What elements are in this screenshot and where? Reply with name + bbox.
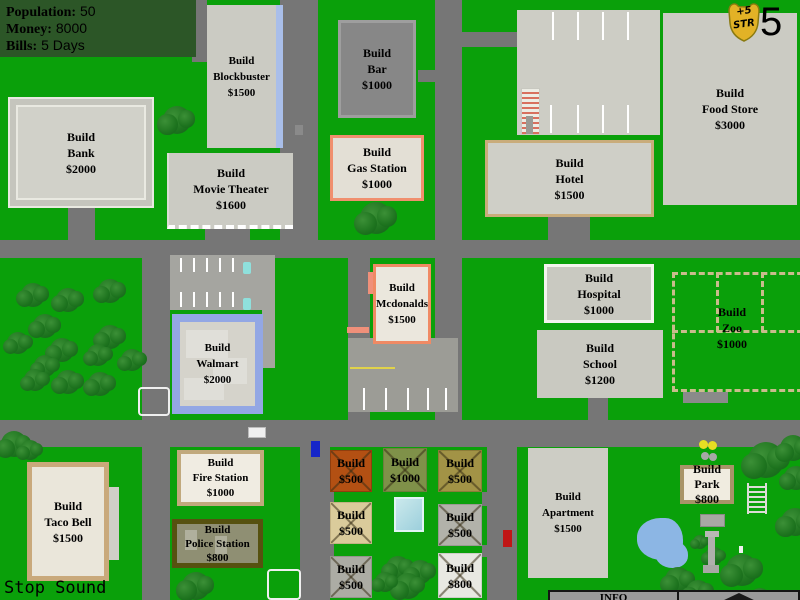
lot-price: $3000 xyxy=(715,117,745,133)
build-small-lot-2-button[interactable]: Build $1000 xyxy=(383,448,427,492)
build-taco-bell-button[interactable]: Build Taco Bell $1500 xyxy=(27,462,109,581)
info-panel[interactable]: INFO xyxy=(548,590,800,600)
build-movie-theater-button[interactable]: Build Movie Theater $1600 xyxy=(167,153,293,229)
parking-stripe xyxy=(180,258,182,272)
tree-icon xyxy=(360,202,392,234)
blockbuster-blue-edge xyxy=(276,5,283,148)
build-walmart-button[interactable]: Build Walmart $2000 xyxy=(172,314,263,414)
tree-icon xyxy=(781,508,800,536)
tree-icon xyxy=(56,370,80,394)
parking-stripe xyxy=(602,105,604,133)
lot-label: Build xyxy=(555,489,581,505)
lot-label: Build xyxy=(716,85,744,101)
parking-stripe xyxy=(363,388,365,410)
parking-stripe xyxy=(627,105,629,133)
lot-price: $1200 xyxy=(585,372,615,388)
road-teeth-3 xyxy=(482,492,498,506)
lot-title: Hotel xyxy=(556,171,584,187)
lot-price: $2000 xyxy=(66,161,96,177)
build-small-lot-7-button[interactable]: Build $800 xyxy=(438,553,482,598)
parking-stripe xyxy=(232,292,234,307)
lot-title: Hospital xyxy=(577,286,620,302)
lot-label: Build xyxy=(54,498,82,514)
parking-stripe xyxy=(206,258,208,272)
lot-price: $500 xyxy=(339,577,363,593)
lot-label: Build xyxy=(205,340,231,356)
road-vertical-bottom-right xyxy=(487,420,517,600)
lot-title: Taco Bell xyxy=(44,514,91,530)
lot-price: $1500 xyxy=(53,530,83,546)
stats-panel: Population:50 Money:8000 Bills:5 Days xyxy=(0,0,196,57)
lot-label: Build xyxy=(205,523,231,537)
parking-stripe xyxy=(445,388,447,410)
yellow-curb-line xyxy=(350,367,395,369)
lot-label: Build xyxy=(363,144,391,160)
build-park-button[interactable]: Build Park $800 xyxy=(680,465,734,504)
taco-bell-drive-strip xyxy=(109,487,119,560)
day-counter: 5 xyxy=(760,0,782,45)
tree-icon xyxy=(780,435,800,461)
lot-title: Apartment xyxy=(542,505,594,521)
bills-label: Bills: xyxy=(6,39,37,54)
build-hotel-button[interactable]: Build Hotel $1500 xyxy=(485,140,654,217)
flower-icon xyxy=(701,452,709,460)
parking-stripe xyxy=(550,105,552,133)
lot-label: Build xyxy=(446,455,474,471)
road-stub-parking xyxy=(462,32,517,47)
lot-label: Build xyxy=(337,561,365,577)
build-bar-button[interactable]: Build Bar $1000 xyxy=(338,20,416,118)
parking-stripe xyxy=(193,292,195,307)
lot-label: Build xyxy=(363,45,391,61)
build-blockbuster-button[interactable]: Build Blockbuster $1500 xyxy=(207,5,276,148)
lot-title: Bar xyxy=(367,61,386,77)
flower-icon xyxy=(709,453,717,461)
lot-label: Build xyxy=(586,340,614,356)
road-stub-hotel xyxy=(548,215,590,241)
park-bench xyxy=(700,514,725,527)
blue-car xyxy=(311,441,320,457)
lot-title: Movie Theater xyxy=(193,181,268,197)
lot-label: Build xyxy=(67,129,95,145)
empty-lot-marker xyxy=(138,387,170,416)
lot-label: Build xyxy=(389,280,415,296)
lot-price: $800 xyxy=(207,551,229,565)
lot-price: $1000 xyxy=(584,302,614,318)
build-small-lot-1-button[interactable]: Build $500 xyxy=(330,450,372,492)
lot-label: Build xyxy=(229,53,255,69)
parking-stripe xyxy=(407,388,409,410)
lot-price: $2000 xyxy=(204,372,232,388)
build-apartment-button[interactable]: Build Apartment $1500 xyxy=(528,448,608,578)
road-vertical-left xyxy=(142,255,170,600)
parking-stripe xyxy=(577,12,579,40)
parking-stripe xyxy=(193,258,195,272)
lot-title: Bank xyxy=(67,145,94,161)
lot-price: $1000 xyxy=(362,77,392,93)
tree-icon xyxy=(87,344,109,366)
build-bank-button[interactable]: Build Bank $2000 xyxy=(8,97,154,208)
cart-return-icon xyxy=(243,298,251,310)
lot-price: $500 xyxy=(448,525,472,541)
lot-label: Build xyxy=(585,270,613,286)
tree-icon xyxy=(21,283,45,307)
info-panel-title: INFO xyxy=(550,592,679,600)
population-value: 50 xyxy=(76,3,96,19)
build-small-lot-6-button[interactable]: Build $500 xyxy=(330,556,372,598)
parking-stripe xyxy=(627,12,629,40)
bills-value: 5 Days xyxy=(37,37,85,53)
strength-badge-icon: +5 STR xyxy=(726,0,762,42)
lot-label: Build xyxy=(391,454,419,470)
tree-icon xyxy=(784,466,800,490)
pond-lobe xyxy=(655,540,688,568)
lot-price: $800 xyxy=(448,576,472,592)
parking-stripe xyxy=(219,258,221,272)
lot-title: Blockbuster xyxy=(213,69,270,85)
road-dot xyxy=(295,125,303,135)
road-stub-theater xyxy=(205,228,250,241)
tree-icon xyxy=(182,572,210,600)
road-stub-bank xyxy=(68,207,95,240)
build-school-button[interactable]: Build School $1200 xyxy=(537,330,663,398)
lot-label: Build xyxy=(446,560,474,576)
build-mcdonalds-button[interactable]: Build Mcdonalds $1500 xyxy=(373,264,431,344)
lot-price: $1600 xyxy=(216,197,246,213)
zoo-walkway xyxy=(683,392,728,403)
lot-price: $1500 xyxy=(388,312,416,328)
city-map: Build Blockbuster $1500 Build Bar $1000 … xyxy=(0,0,800,600)
lot-label: Build xyxy=(693,462,721,477)
lot-title: Food Store xyxy=(702,101,758,117)
lot-price: $500 xyxy=(448,471,472,487)
build-gas-station-button[interactable]: Build Gas Station $1000 xyxy=(330,135,424,201)
lot-price: $500 xyxy=(339,523,363,539)
flower-icon xyxy=(708,441,717,450)
tree-icon xyxy=(163,106,191,134)
parking-lot-walmart-ext xyxy=(262,310,275,368)
sound-toggle-button[interactable]: Stop Sound xyxy=(4,578,106,598)
parking-stripe xyxy=(552,12,554,40)
mcdonalds-drive-detail-2 xyxy=(347,327,369,333)
tree-icon xyxy=(7,332,29,354)
build-fire-station-button[interactable]: Build Fire Station $1000 xyxy=(177,450,264,506)
build-small-lot-4-button[interactable]: Build $500 xyxy=(330,502,372,544)
empty-lot-marker xyxy=(267,569,301,600)
lot-label: Build xyxy=(555,155,583,171)
totem-cap-bottom xyxy=(703,565,719,573)
red-car xyxy=(503,530,512,547)
lot-title: Fire Station xyxy=(193,471,249,486)
parking-stripe xyxy=(385,388,387,410)
parking-stripe xyxy=(180,292,182,307)
lot-price: $800 xyxy=(695,492,719,507)
lot-label: Build xyxy=(337,507,365,523)
road-horizontal-2 xyxy=(0,420,800,447)
lot-label: Build xyxy=(718,304,746,320)
lot-price: $1500 xyxy=(228,85,256,101)
info-panel-expand[interactable] xyxy=(679,592,798,600)
lot-title: Police Station xyxy=(185,537,249,551)
lot-title: Walmart xyxy=(196,356,238,372)
money-label: Money: xyxy=(6,22,52,37)
lot-price: $1000 xyxy=(207,486,235,501)
ladder-base xyxy=(526,116,533,134)
lot-title: School xyxy=(583,356,617,372)
parking-stripe xyxy=(602,12,604,40)
person-sprite xyxy=(739,546,743,553)
tree-icon xyxy=(98,279,122,303)
road-teeth-4 xyxy=(482,545,498,557)
lot-label: Build xyxy=(337,455,365,471)
parking-stripe xyxy=(577,105,579,133)
parking-stripe xyxy=(206,292,208,307)
lot-title: Park xyxy=(694,477,719,492)
population-label: Population: xyxy=(6,5,76,20)
lot-title: Mcdonalds xyxy=(376,296,428,312)
lot-price: $500 xyxy=(339,471,363,487)
tree-icon xyxy=(56,288,80,312)
expand-triangle-icon[interactable] xyxy=(722,593,756,600)
parking-stripe xyxy=(232,258,234,272)
road-horizontal-1 xyxy=(0,240,800,258)
tree-icon xyxy=(395,573,421,599)
build-small-lot-5-button[interactable]: Build $500 xyxy=(438,504,482,546)
totem-pole xyxy=(708,537,715,565)
lot-price: $1000 xyxy=(390,470,420,486)
road-stub-bar xyxy=(418,70,435,82)
parking-stripe xyxy=(219,292,221,307)
lot-title: Zoo xyxy=(722,320,742,336)
road-stub-school xyxy=(588,396,608,421)
build-small-lot-3-button[interactable]: Build $500 xyxy=(438,450,482,492)
tree-icon xyxy=(33,314,57,338)
tree-icon xyxy=(20,440,40,460)
money-value: 8000 xyxy=(52,20,87,36)
lot-price: $1000 xyxy=(717,336,747,352)
lot-label: Build xyxy=(217,165,245,181)
lot-label: Build xyxy=(446,509,474,525)
monkey-bars-icon xyxy=(747,483,767,514)
build-zoo-button[interactable]: Build Zoo $1000 xyxy=(690,304,774,352)
white-car xyxy=(248,427,266,438)
parking-stripe xyxy=(427,388,429,410)
build-hospital-button[interactable]: Build Hospital $1000 xyxy=(544,264,654,323)
road-teeth-2 xyxy=(322,543,334,557)
tree-icon xyxy=(375,572,395,592)
lot-title: Gas Station xyxy=(347,160,407,176)
tree-icon xyxy=(726,554,758,586)
tree-icon xyxy=(88,372,112,396)
cart-return-icon xyxy=(243,262,251,274)
build-police-station-button[interactable]: Build Police Station $800 xyxy=(172,519,263,568)
flower-icon xyxy=(699,440,708,449)
tree-icon xyxy=(24,369,46,391)
parking-lot-walmart xyxy=(170,255,275,310)
tree-icon xyxy=(121,349,143,371)
lot-price: $1500 xyxy=(555,187,585,203)
swimming-pool xyxy=(394,497,424,532)
tree-icon xyxy=(693,535,707,549)
lot-price: $1500 xyxy=(554,521,582,537)
lot-price: $1000 xyxy=(362,176,392,192)
lot-label: Build xyxy=(208,456,234,471)
